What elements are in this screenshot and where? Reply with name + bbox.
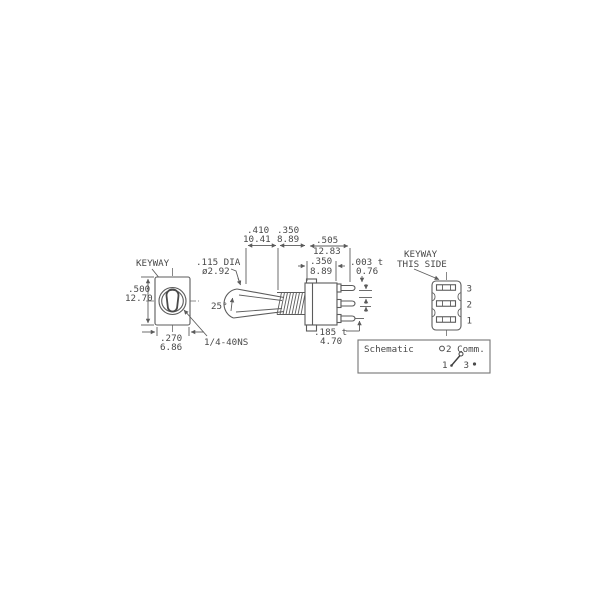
terminal-top [337,284,355,292]
datasheet-drawing-page: KEYWAY .500 12.70 .270 6.86 1/4-40NS [0,0,605,605]
schematic-title: Schematic [364,344,414,355]
lever-bottom-edge [234,312,285,319]
throw-angle-label: 25° [211,301,228,312]
angle-arrow [231,298,233,311]
contact-dot-3 [473,362,476,365]
lever-pivot-circle [459,352,463,356]
front-view: KEYWAY .500 12.70 .270 6.86 1/4-40NS [125,258,248,353]
thread-spec-label: 1/4-40NS [204,337,248,348]
tip-dia-mm-label: ø2.92 [202,266,230,277]
terminal-middle [337,300,355,308]
switch-body [305,283,337,325]
schematic-terminal-3: 3 [464,360,470,371]
lever-inner-line [236,309,282,313]
front-body-outline [155,277,190,325]
tip-dia-arrow [238,278,241,285]
dim-350a-mm: 8.89 [277,234,299,245]
pin-1-label: 1 [467,316,473,327]
dim-185-mm: 4.70 [320,336,342,347]
pin-3-label: 3 [467,284,473,295]
body-top-tab [307,279,317,283]
dim-width-mm: 6.86 [160,342,182,353]
dim-505-in: .505 [316,235,338,246]
schematic-terminal-1: 1 [442,360,448,371]
dim-003-mm: 0.76 [356,266,378,277]
keyway-label: KEYWAY [136,258,170,269]
schematic-common-label: 2 Comm. [446,344,485,355]
keyway-this-side-line2: THIS SIDE [397,259,447,270]
dim-350b-mm: 8.89 [310,266,332,277]
terminal-bottom [337,315,355,323]
dim-410-mm: 10.41 [243,234,271,245]
pin-2-label: 2 [467,300,473,311]
lever-top-edge [237,289,284,298]
keyway-side-arrow [414,269,439,280]
threaded-bushing [277,293,305,315]
dim-height-mm: 12.70 [125,293,153,304]
rear-view: KEYWAY THIS SIDE 3 2 1 [397,249,472,338]
technical-drawing: KEYWAY .500 12.70 .270 6.86 1/4-40NS [0,0,605,605]
tip-dia-leader [231,269,240,284]
schematic-box: Schematic 2 Comm. 1 3 [358,340,490,373]
